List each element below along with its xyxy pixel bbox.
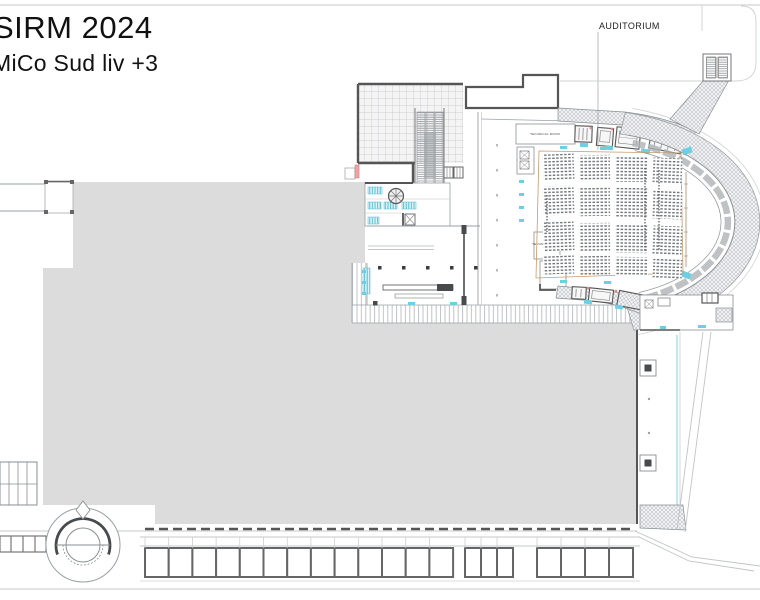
toilets-block [365, 183, 450, 226]
left-corridor [0, 180, 74, 214]
facade-bay [240, 548, 264, 577]
facade-bay [561, 548, 585, 577]
facade-bay [287, 548, 311, 577]
facade-bay [335, 548, 359, 577]
seat-block [652, 189, 682, 219]
red-accent-marker [345, 165, 359, 179]
facade-bay [358, 548, 382, 577]
auditorium-seating [536, 146, 688, 284]
facade-bay [216, 548, 240, 577]
facade-bay [585, 548, 609, 577]
seat-block [579, 256, 610, 275]
seat-block [615, 257, 648, 276]
page-title: SIRM 2024 [0, 10, 153, 46]
seat-block [653, 157, 683, 184]
seat-block [579, 187, 610, 216]
seat-block [615, 188, 648, 217]
round-tower [46, 501, 120, 582]
facade-bay [497, 548, 513, 577]
floor-plan-drawing: TECHNICAL ROOM TECHNICAL ROOM [0, 0, 760, 600]
elevators [444, 167, 463, 178]
seat-block [653, 258, 683, 278]
facade-bay [264, 548, 288, 577]
upper-room [466, 75, 572, 121]
auditorium-label: AUDITORIUM [599, 21, 660, 31]
seat-block [615, 224, 648, 253]
seat-block [652, 225, 682, 255]
right-corridor [637, 293, 733, 532]
seat-block [543, 254, 575, 274]
floor-plan-page: TECHNICAL ROOM TECHNICAL ROOM [0, 0, 760, 600]
structural-column [450, 266, 454, 270]
seat-block [615, 156, 648, 182]
facade-bay [537, 548, 561, 577]
structural-column [378, 266, 382, 270]
facade-bay [382, 548, 406, 577]
facade-bay [481, 548, 497, 577]
left-stair-block [0, 462, 37, 505]
page-subtitle: MiCo Sud liv +3 [0, 50, 158, 77]
foyer-room [362, 225, 480, 306]
facade-bay [192, 548, 216, 577]
technical-room-label-upper: TECHNICAL ROOM [530, 132, 560, 136]
desk-dark-segment [437, 284, 453, 291]
facade-bay [465, 548, 481, 577]
facade-bay [311, 548, 335, 577]
seat-block [579, 223, 610, 252]
structural-column [474, 266, 478, 270]
structural-column [426, 266, 430, 270]
facade-bay [145, 548, 169, 577]
seat-block [543, 153, 575, 180]
seat-block [579, 155, 610, 181]
facade-bay [406, 548, 430, 577]
skylight-grid [358, 84, 463, 163]
structural-column [402, 266, 406, 270]
facade-bay [429, 548, 453, 577]
facade-bay [169, 548, 193, 577]
facade-bay [609, 548, 633, 577]
